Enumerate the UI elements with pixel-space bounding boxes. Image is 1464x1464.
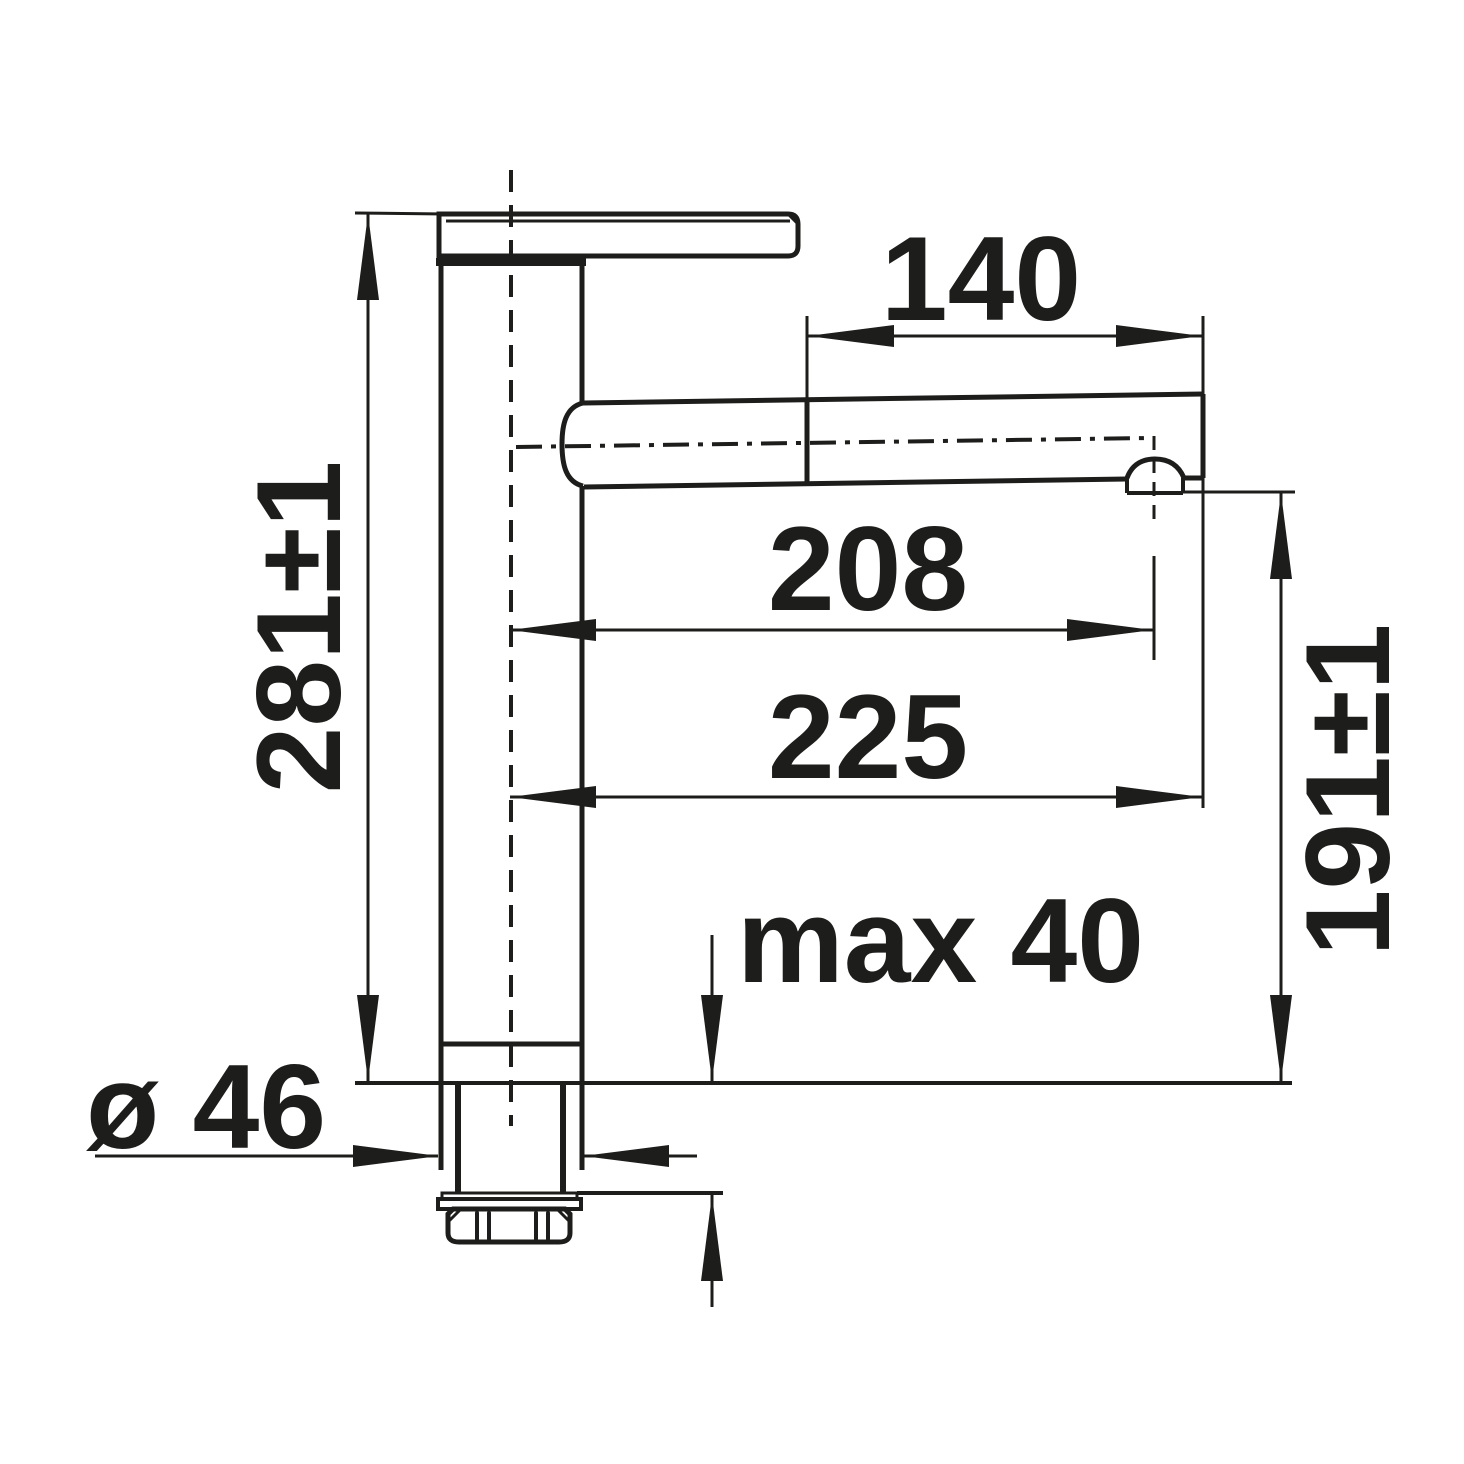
spout-axis-centerline [516, 438, 1152, 447]
arrowhead-left [510, 619, 596, 641]
arrowhead-up [1270, 493, 1292, 579]
extension-line-top [355, 213, 445, 214]
arrowhead-right [353, 1145, 439, 1167]
arrowhead-left [510, 786, 596, 808]
arrowhead-up [701, 1195, 723, 1281]
dim-label-dia46: ø 46 [86, 1040, 326, 1174]
arrowhead-down [1270, 995, 1292, 1081]
arrowhead-left [583, 1145, 669, 1167]
arrowhead-right [1116, 325, 1202, 347]
arrowhead-down [357, 995, 379, 1081]
arrowhead-right [1116, 786, 1202, 808]
dimension-base-diameter: ø 46 [86, 1040, 697, 1174]
dimension-reach-tip: 225 [510, 670, 1202, 808]
dim-label-191: 191±1 [1281, 624, 1415, 957]
dim-label-208: 208 [768, 502, 968, 636]
arrowhead-right [1067, 619, 1153, 641]
dim-label-max40: max 40 [737, 874, 1144, 1008]
faucet-dimension-drawing: 281±1 140 208 225 191±1 max 40 [0, 0, 1464, 1464]
arrowhead-down [701, 995, 723, 1081]
technical-drawing-page: 281±1 140 208 225 191±1 max 40 [0, 0, 1464, 1464]
locknut-outline [448, 1209, 570, 1242]
dimension-deck-thickness: max 40 [701, 874, 1144, 1307]
dimension-outlet-height: 191±1 [1183, 492, 1415, 1081]
dim-label-140: 140 [881, 212, 1081, 346]
dim-label-225: 225 [768, 670, 968, 804]
arrowhead-up [357, 214, 379, 300]
dim-label-281: 281±1 [232, 461, 366, 794]
spout-top-edge [583, 394, 1203, 403]
dimension-total-height: 281±1 [232, 213, 445, 1081]
spout-bottom-edge-left [584, 479, 1127, 487]
